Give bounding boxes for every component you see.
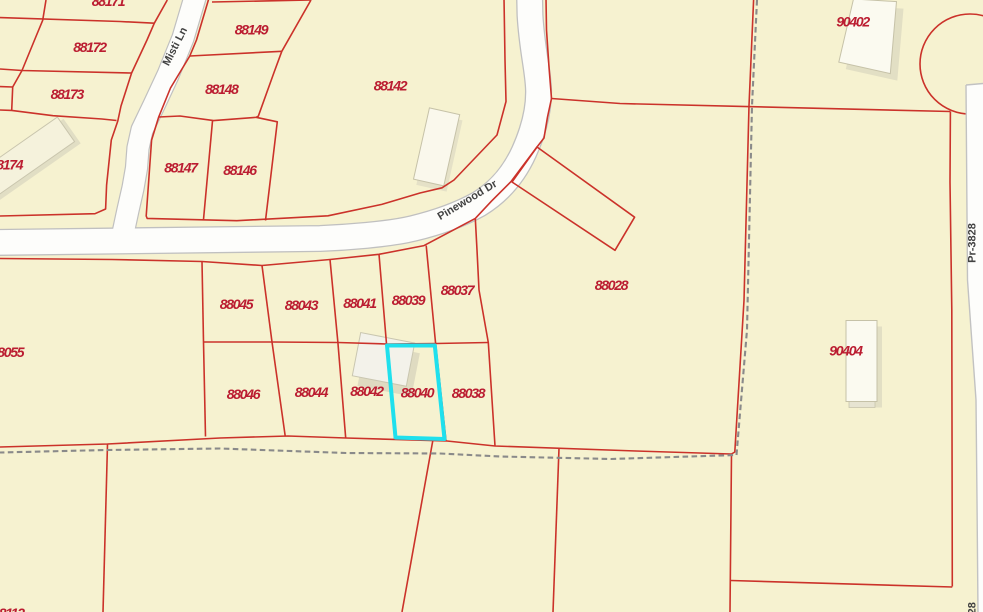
svg-text:88045: 88045 (220, 296, 254, 312)
svg-text:88171: 88171 (92, 0, 126, 9)
svg-text:Pr-3828: Pr-3828 (967, 223, 979, 263)
svg-text:88046: 88046 (227, 386, 261, 402)
svg-text:88147: 88147 (164, 160, 199, 176)
svg-text:88042: 88042 (350, 383, 384, 399)
svg-text:88043: 88043 (285, 297, 319, 313)
svg-text:88038: 88038 (452, 385, 486, 401)
svg-text:88172: 88172 (73, 39, 107, 55)
svg-text:88055: 88055 (0, 344, 25, 360)
svg-text:90404: 90404 (829, 343, 863, 359)
svg-text:90402: 90402 (836, 14, 870, 30)
svg-text:88142: 88142 (374, 78, 408, 94)
svg-text:Pr-3828: Pr-3828 (967, 602, 979, 612)
svg-text:88146: 88146 (223, 162, 257, 178)
svg-text:88028: 88028 (595, 277, 629, 293)
svg-text:88044: 88044 (295, 384, 329, 400)
svg-text:88149: 88149 (235, 22, 269, 38)
svg-text:88041: 88041 (343, 295, 377, 311)
svg-text:88039: 88039 (392, 292, 426, 308)
svg-text:88173: 88173 (51, 86, 85, 102)
svg-text:88037: 88037 (441, 282, 476, 298)
svg-text:88112: 88112 (0, 605, 25, 612)
svg-text:88174: 88174 (0, 157, 24, 173)
svg-text:88040: 88040 (401, 385, 435, 401)
svg-text:88148: 88148 (205, 81, 239, 97)
